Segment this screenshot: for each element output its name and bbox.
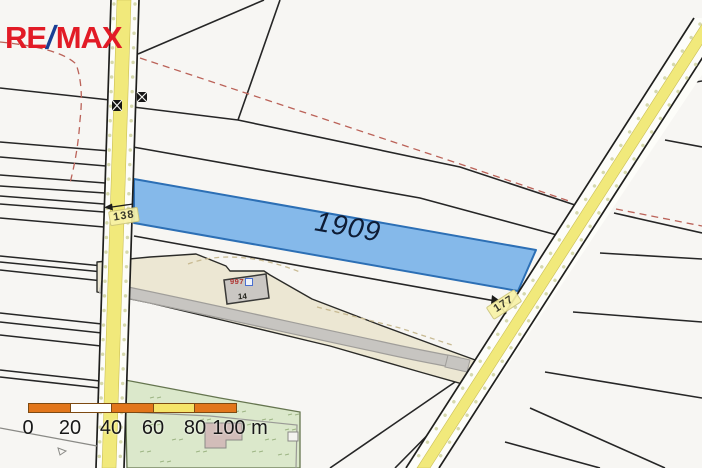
house-number-label: 997 (230, 277, 253, 286)
scale-bar (28, 403, 237, 413)
building-parcel-number-label: 14 (238, 292, 248, 302)
scale-tick-label: 80 (184, 417, 206, 440)
survey-marker-icon (137, 92, 147, 102)
scale-segment (195, 404, 236, 412)
scale-tick-label: 60 (142, 417, 164, 440)
scale-end-label: 100 m (212, 417, 268, 440)
scale-tick-label: 0 (22, 417, 33, 440)
cadastral-map: RE/MAX 1909 138 177 997 14 0 20 40 60 80… (0, 0, 702, 468)
garden-shed (288, 432, 298, 441)
remax-logo-re: RE (5, 20, 46, 55)
scale-segment (112, 404, 154, 412)
remax-logo-max: MAX (56, 20, 122, 55)
remax-logo: RE/MAX (5, 22, 122, 53)
scale-segment (154, 404, 196, 412)
scale-segment (29, 404, 71, 412)
scale-tick-label: 20 (59, 417, 81, 440)
survey-marker-icon (112, 100, 122, 111)
house-number-text: 997 (230, 277, 244, 286)
scale-segment (71, 404, 113, 412)
scale-tick-label: 40 (100, 417, 122, 440)
building-flag-icon (245, 278, 253, 286)
